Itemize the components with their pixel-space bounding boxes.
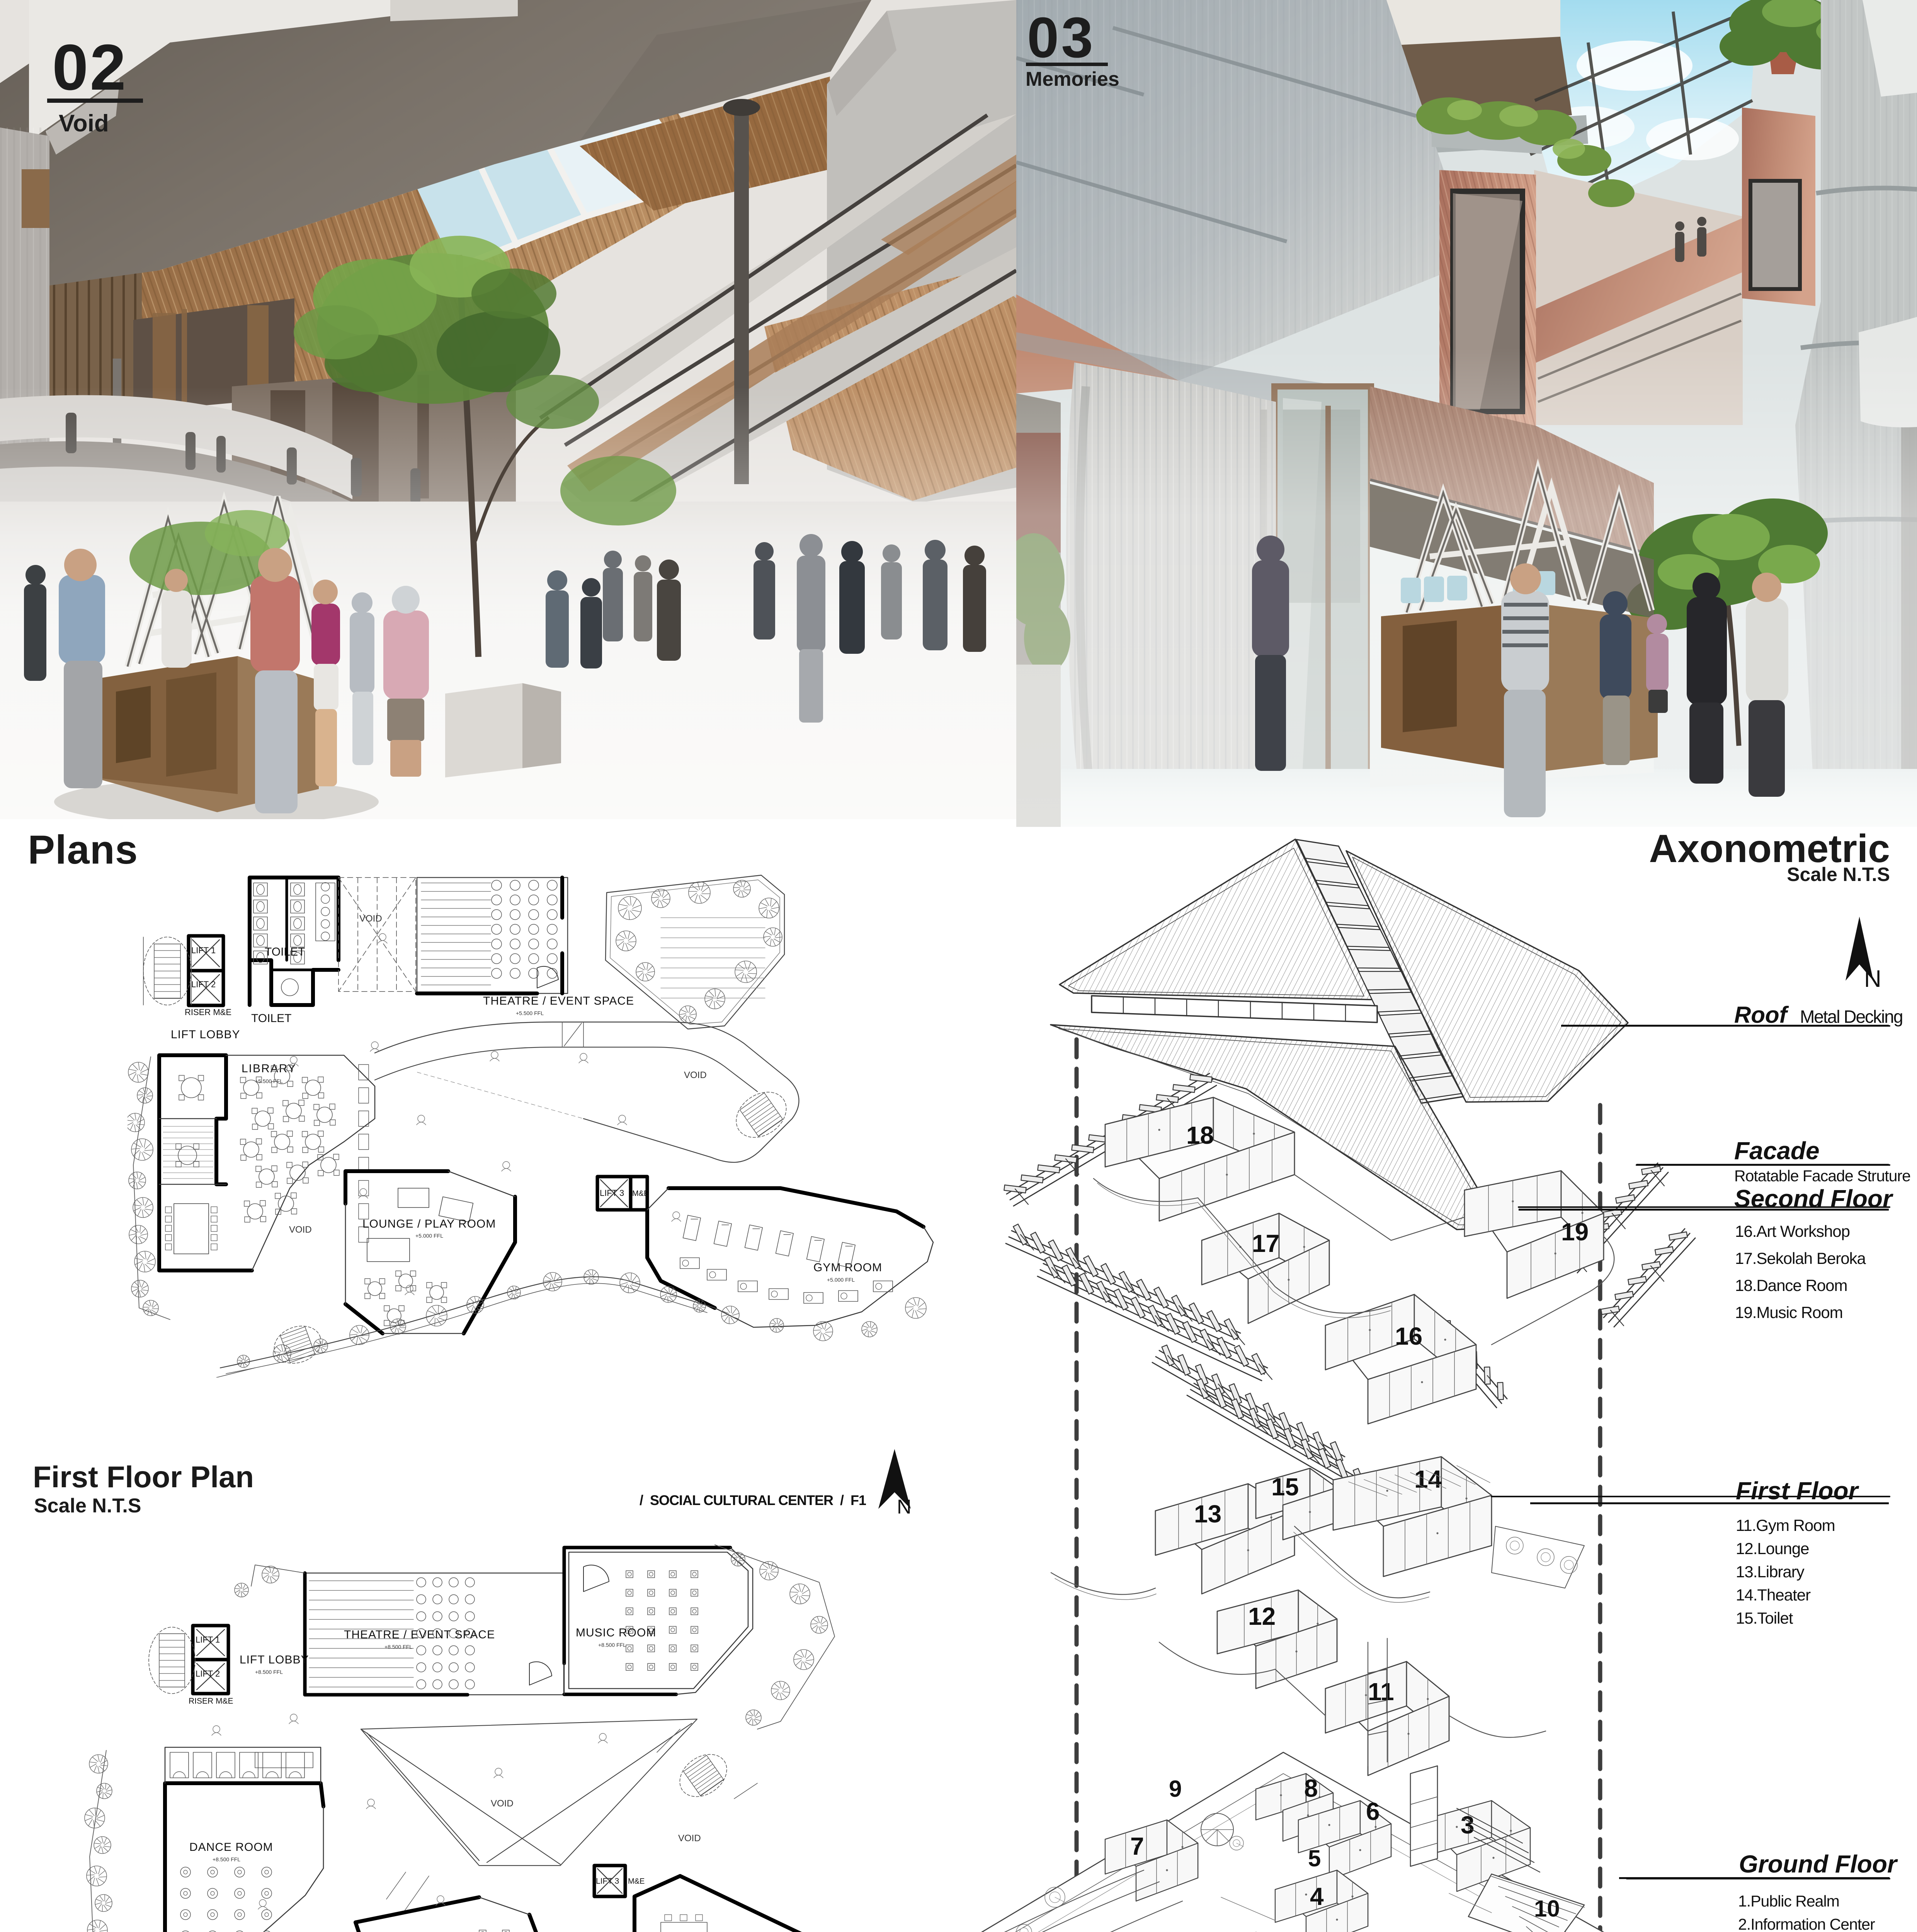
- svg-text:LOUNGE / PLAY ROOM: LOUNGE / PLAY ROOM: [362, 1218, 496, 1230]
- svg-text:6: 6: [1366, 1798, 1380, 1825]
- svg-text:LIFT 2: LIFT 2: [196, 1669, 220, 1679]
- svg-text:Memories: Memories: [1026, 68, 1119, 90]
- svg-text:VOID: VOID: [359, 913, 382, 924]
- svg-text:16: 16: [1395, 1322, 1422, 1350]
- svg-text:THEATRE / EVENT SPACE: THEATRE / EVENT SPACE: [344, 1628, 495, 1641]
- svg-text:Void: Void: [59, 110, 109, 137]
- svg-text:02: 02: [52, 31, 128, 104]
- svg-text:+5.000 FFL: +5.000 FFL: [827, 1277, 855, 1283]
- svg-text:13: 13: [1194, 1500, 1221, 1528]
- svg-text:THEATRE / EVENT SPACE: THEATRE / EVENT SPACE: [483, 995, 634, 1007]
- svg-text:LIFT 1: LIFT 1: [191, 946, 216, 955]
- svg-text:VOID: VOID: [678, 1833, 701, 1844]
- svg-text:M&E: M&E: [628, 1877, 645, 1886]
- svg-text:LIBRARY: LIBRARY: [242, 1062, 296, 1075]
- svg-text:10: 10: [1534, 1896, 1560, 1922]
- svg-text:GYM ROOM: GYM ROOM: [813, 1261, 882, 1274]
- svg-text:M&E: M&E: [632, 1189, 649, 1198]
- svg-text:LIFT LOBBY: LIFT LOBBY: [171, 1028, 240, 1041]
- svg-text:LIFT 1: LIFT 1: [196, 1635, 220, 1645]
- svg-text:VOID: VOID: [491, 1798, 514, 1809]
- svg-text:9: 9: [1169, 1776, 1182, 1802]
- svg-text:DANCE ROOM: DANCE ROOM: [189, 1841, 273, 1854]
- svg-text:4: 4: [1310, 1883, 1324, 1910]
- svg-text:8: 8: [1304, 1774, 1318, 1802]
- svg-text:LIFT 3: LIFT 3: [596, 1877, 619, 1886]
- svg-text:03: 03: [1027, 6, 1095, 70]
- svg-text:7: 7: [1130, 1832, 1144, 1860]
- svg-text:+5.000 FFL: +5.000 FFL: [415, 1233, 443, 1239]
- svg-text:LIFT 2: LIFT 2: [191, 980, 216, 989]
- svg-text:+8.500 FFL: +8.500 FFL: [213, 1856, 240, 1862]
- svg-text:+8.500 FFL: +8.500 FFL: [384, 1644, 412, 1650]
- svg-text:3: 3: [1461, 1811, 1475, 1839]
- svg-text:15: 15: [1271, 1473, 1299, 1501]
- svg-text:19: 19: [1561, 1218, 1589, 1246]
- svg-text:18: 18: [1186, 1121, 1214, 1149]
- svg-text:VOID: VOID: [684, 1070, 707, 1080]
- svg-text:N: N: [1864, 966, 1881, 992]
- svg-text:RISER M&E: RISER M&E: [189, 1697, 233, 1706]
- svg-text:+8.500 FFL: +8.500 FFL: [255, 1669, 283, 1675]
- svg-text:RISER M&E: RISER M&E: [185, 1007, 231, 1017]
- svg-text:MUSIC ROOM: MUSIC ROOM: [576, 1626, 656, 1639]
- svg-text:12: 12: [1248, 1602, 1276, 1630]
- svg-text:+8.500 FFL: +8.500 FFL: [598, 1642, 626, 1648]
- svg-text:LIFT LOBBY: LIFT LOBBY: [240, 1653, 309, 1666]
- svg-text:5: 5: [1308, 1845, 1321, 1871]
- svg-text:+5.500 FFL: +5.500 FFL: [516, 1010, 544, 1016]
- svg-text:LIFT 3: LIFT 3: [600, 1188, 624, 1198]
- svg-text:17: 17: [1252, 1230, 1279, 1257]
- svg-text:TOILET: TOILET: [251, 1012, 291, 1025]
- svg-text:TOILET: TOILET: [265, 946, 305, 958]
- svg-text:VOID: VOID: [289, 1225, 312, 1235]
